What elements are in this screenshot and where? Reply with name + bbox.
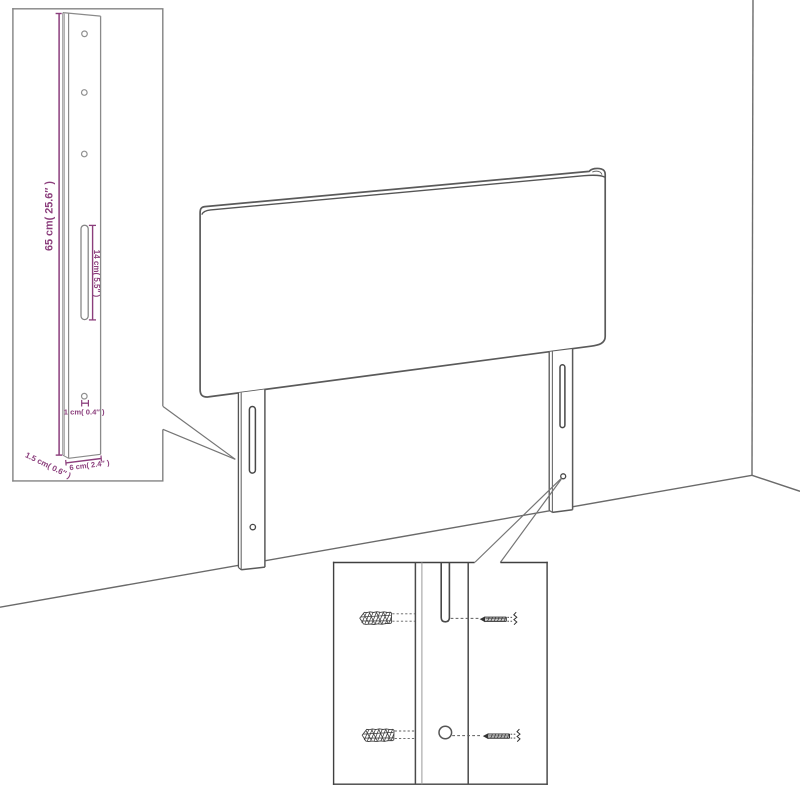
- svg-text:65 cm( 25.6″ ): 65 cm( 25.6″ ): [44, 181, 56, 251]
- svg-text:1 cm( 0.4″ ): 1 cm( 0.4″ ): [64, 407, 105, 416]
- svg-text:14 cm( 5.5″ ): 14 cm( 5.5″ ): [92, 250, 101, 298]
